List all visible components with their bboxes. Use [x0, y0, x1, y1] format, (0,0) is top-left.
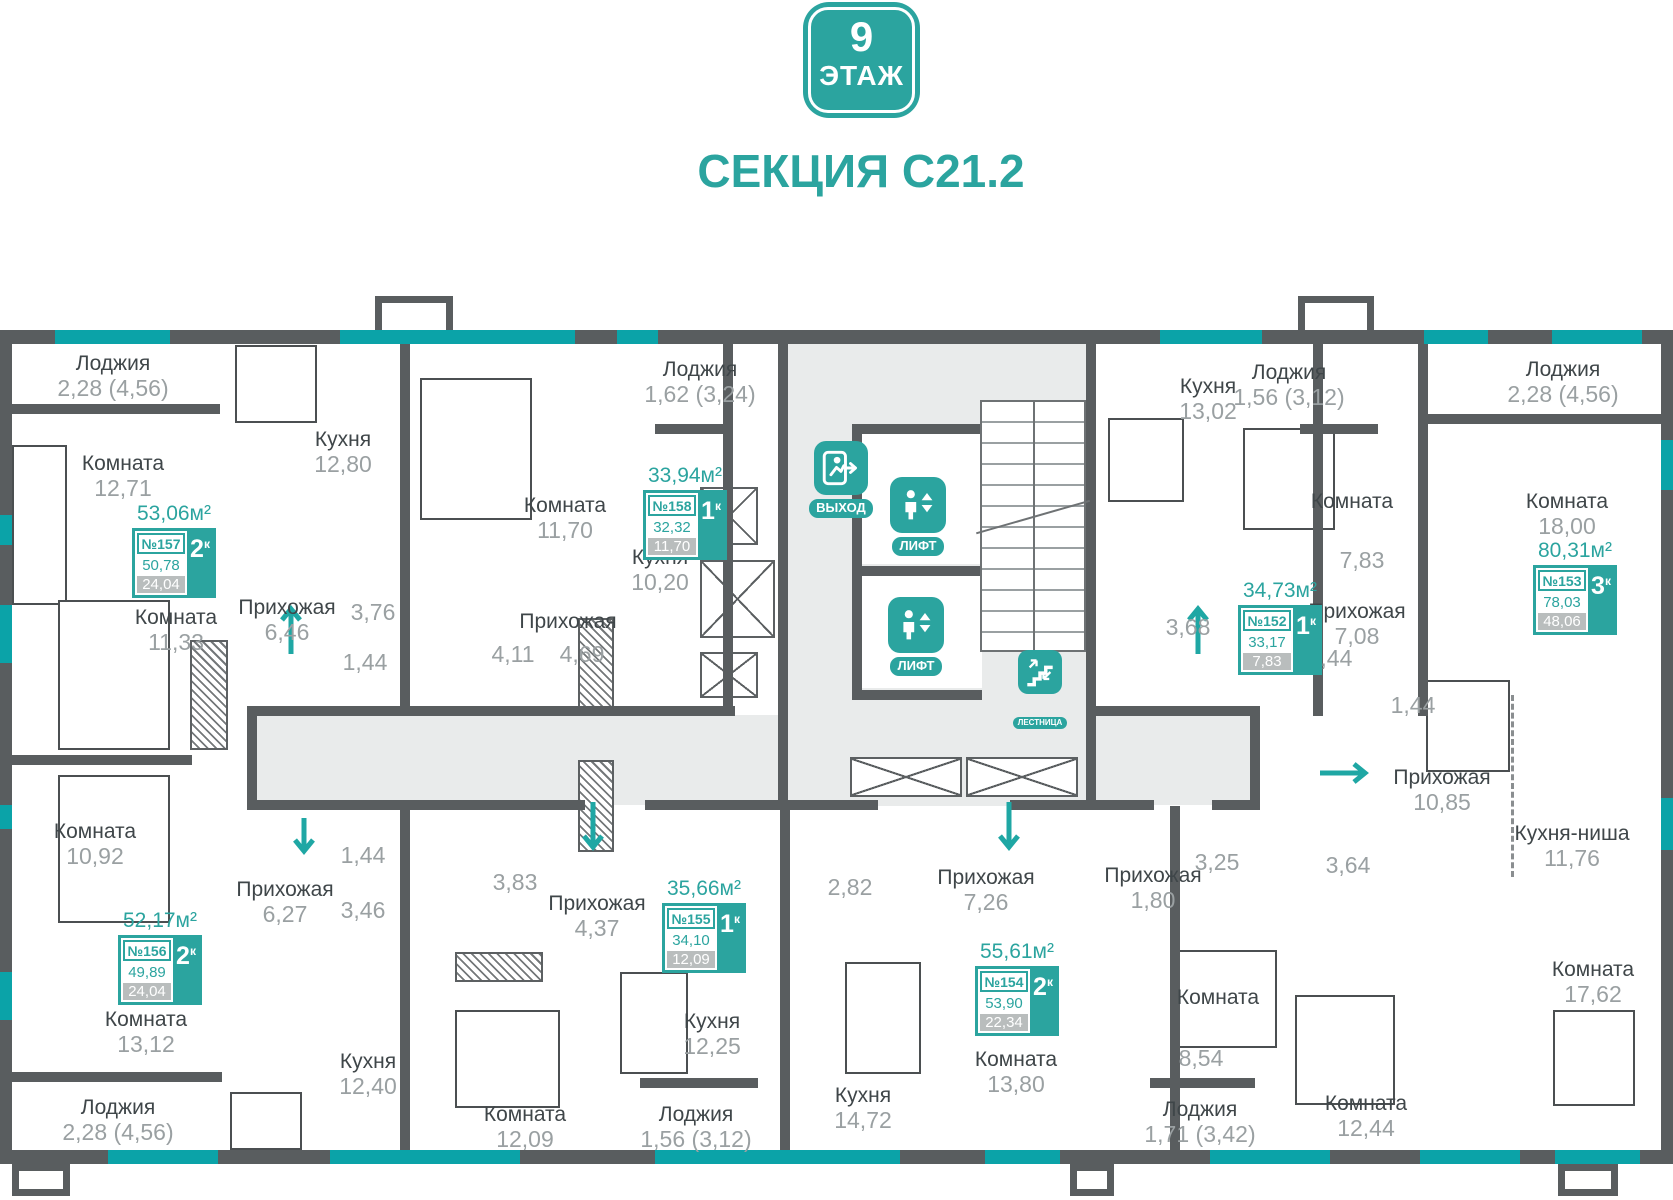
apartment-card[interactable]: 80,31м² №153 3к 78,03 48,06: [1533, 565, 1617, 635]
room-name: Лоджия: [640, 1103, 751, 1127]
stairs-icon-glyph: [1018, 650, 1062, 694]
room-label: Прихожая 7,08: [1308, 600, 1405, 649]
room-label: Комната 13,12: [105, 1008, 187, 1057]
room-label: 4,11: [491, 642, 534, 668]
apartment-secondary-area: 11,70: [648, 538, 696, 555]
room-area: 6,46: [238, 620, 335, 646]
room-area: 3,83: [493, 870, 538, 896]
room-label: Лоджия 1,56 (3,12): [640, 1103, 751, 1152]
room-label: Комната 12,71: [82, 452, 164, 501]
room-label: Прихожая 1,80: [1104, 864, 1201, 913]
room-area: 1,56 (3,12): [1233, 385, 1344, 411]
room-label: 3,46: [341, 898, 386, 924]
apartment-total-area: 52,17м²: [123, 909, 197, 933]
room-area: 1,80: [1104, 888, 1201, 914]
lift-icon-1-glyph: [890, 477, 946, 533]
room-area: 13,80: [975, 1072, 1057, 1098]
apartment-rooms-count: 1к: [1293, 608, 1319, 672]
room-name: Прихожая: [1308, 600, 1405, 624]
room-area: 4,37: [548, 916, 645, 942]
rooms-suffix: к: [1047, 976, 1053, 1033]
room-label: Лоджия 1,62 (3,24): [644, 358, 755, 407]
room-name: Лоджия: [62, 1096, 173, 1120]
room-label: Прихожая 4,37: [548, 892, 645, 941]
rooms-suffix: к: [1310, 615, 1316, 672]
rooms-suffix: к: [204, 538, 210, 595]
room-name: Лоджия: [1144, 1098, 1255, 1122]
apartment-secondary-area: 24,04: [123, 983, 171, 1000]
room-area: 13,12: [105, 1032, 187, 1058]
room-label: 8,54: [1179, 1046, 1224, 1072]
room-label: 2,82: [828, 875, 873, 901]
room-label: 1,44: [1391, 693, 1436, 719]
room-label: Комната 11,33: [135, 606, 217, 655]
room-name: Комната: [135, 606, 217, 630]
room-area: 1,56 (3,12): [640, 1127, 751, 1153]
room-area: 12,44: [1325, 1116, 1407, 1142]
room-name: Прихожая: [1393, 766, 1490, 790]
apartment-card[interactable]: 33,94м² №158 1к 32,32 11,70: [643, 490, 727, 560]
apartment-secondary-area: 48,06: [1538, 613, 1586, 630]
room-area: 2,82: [828, 875, 873, 901]
room-label: 3,76: [351, 600, 396, 626]
room-area: 3,64: [1326, 853, 1371, 879]
room-area: 10,92: [54, 844, 136, 870]
apartment-secondary-area: 24,04: [137, 576, 185, 593]
apartment-rooms-count: 2к: [173, 938, 199, 1002]
room-label: Кухня 12,40: [339, 1050, 397, 1099]
room-label: Кухня 12,80: [314, 428, 372, 477]
room-label: Прихожая 7,26: [937, 866, 1034, 915]
lift-label-2: ЛИФТ: [890, 657, 941, 676]
apartment-rooms-count: 2к: [187, 531, 213, 595]
room-name: Лоджия: [644, 358, 755, 382]
apartment-card[interactable]: 52,17м² №156 2к 49,89 24,04: [118, 935, 202, 1005]
apartment-total-area: 55,61м²: [980, 940, 1054, 964]
room-name: Комната: [1311, 490, 1393, 514]
apartment-number: №155: [667, 908, 715, 929]
room-area: 3,76: [351, 600, 396, 626]
room-area: 1,44: [341, 843, 386, 869]
room-label: 3,83: [493, 870, 538, 896]
exit-icon: ВЫХОД: [806, 441, 876, 518]
room-label: Прихожая 6,46: [238, 596, 335, 645]
apartment-living-area: 78,03: [1536, 592, 1588, 612]
room-name: Прихожая: [519, 610, 616, 634]
room-area: 11,33: [135, 630, 217, 656]
lift-icon-1: ЛИФТ: [888, 477, 948, 556]
apartment-total-area: 80,31м²: [1538, 539, 1612, 563]
apartment-number: №158: [648, 495, 696, 516]
room-label: Комната 10,92: [54, 820, 136, 869]
apartment-total-area: 34,73м²: [1243, 579, 1317, 603]
room-label: Лоджия 1,71 (3,42): [1144, 1098, 1255, 1147]
apartment-card-box: №157 2к 50,78 24,04: [132, 528, 216, 598]
apartment-total-area: 33,94м²: [648, 464, 722, 488]
apartment-rooms-count: 1к: [717, 906, 743, 970]
rooms-value: 3: [1591, 572, 1605, 632]
lift-label-1: ЛИФТ: [892, 537, 943, 556]
room-name: Кухня: [314, 428, 372, 452]
room-area: 7,83: [1340, 548, 1385, 574]
room-label: Лоджия 2,28 (4,56): [62, 1096, 173, 1145]
room-label: 7,83: [1340, 548, 1385, 574]
room-area: 10,85: [1393, 790, 1490, 816]
room-name: Лоджия: [1507, 358, 1618, 382]
room-area: 12,09: [484, 1127, 566, 1153]
room-label: 1,44: [341, 843, 386, 869]
direction-arrow-right-1: [1318, 760, 1370, 791]
room-label: 3,64: [1326, 853, 1371, 879]
apartment-number: №157: [137, 533, 185, 554]
room-label: Комната 17,62: [1552, 958, 1634, 1007]
apartment-living-area: 32,32: [646, 517, 698, 537]
room-name: Комната: [975, 1048, 1057, 1072]
apartment-secondary-area: 12,09: [667, 951, 715, 968]
room-name: Комната: [82, 452, 164, 476]
room-label: Комната 13,80: [975, 1048, 1057, 1097]
room-label: 4,69: [560, 642, 605, 668]
room-name: Кухня: [339, 1050, 397, 1074]
room-area: 2,28 (4,56): [57, 376, 168, 402]
stairs-label: ЛЕСТНИЦА: [1013, 717, 1068, 729]
room-label: Кухня 12,25: [683, 1010, 741, 1059]
room-area: 18,00: [1526, 514, 1608, 540]
apartment-secondary-area: 7,83: [1243, 653, 1291, 670]
room-label: Комната 11,70: [524, 494, 606, 543]
room-name: Комната: [1325, 1092, 1407, 1116]
apartment-number: №156: [123, 940, 171, 961]
room-name: Комната: [1552, 958, 1634, 982]
room-area: 7,26: [937, 890, 1034, 916]
apartment-card[interactable]: 55,61м² №154 2к 53,90 22,34: [975, 966, 1059, 1036]
apartment-number: №153: [1538, 570, 1586, 591]
apartment-card-box: №155 1к 34,10 12,09: [662, 903, 746, 973]
room-label: Лоджия 2,28 (4,56): [57, 352, 168, 401]
room-area: 11,70: [524, 518, 606, 544]
apartment-living-area: 53,90: [978, 993, 1030, 1013]
rooms-value: 1: [701, 497, 715, 557]
apartment-card-box: №158 1к 32,32 11,70: [643, 490, 727, 560]
room-name: Лоджия: [57, 352, 168, 376]
room-area: 1,44: [1391, 693, 1436, 719]
apartment-number: №152: [1243, 610, 1291, 631]
room-label: Кухня 14,72: [834, 1084, 892, 1133]
room-name: Прихожая: [548, 892, 645, 916]
room-area: 2,28 (4,56): [1507, 382, 1618, 408]
room-label: Прихожая 6,27: [236, 878, 333, 927]
room-label: Прихожая 10,85: [1393, 766, 1490, 815]
apartment-rooms-count: 3к: [1588, 568, 1614, 632]
room-area: 14,72: [834, 1108, 892, 1134]
lift-icon-2-glyph: [888, 597, 944, 653]
room-name: Комната: [1177, 986, 1259, 1010]
room-label: Комната: [1311, 490, 1393, 514]
rooms-suffix: к: [734, 913, 740, 970]
apartment-living-area: 49,89: [121, 962, 173, 982]
room-area: 13,02: [1179, 399, 1237, 425]
page: 9 ЭТАЖ СЕКЦИЯ С21.2 ВЫХОД: [0, 0, 1673, 1200]
room-name: Кухня: [834, 1084, 892, 1108]
room-label: 3,25: [1195, 850, 1240, 876]
room-area: 3,68: [1166, 615, 1211, 641]
room-name: Комната: [484, 1103, 566, 1127]
room-area: 17,62: [1552, 982, 1634, 1008]
apartment-living-area: 34,10: [665, 930, 717, 950]
apartment-card[interactable]: 35,66м² №155 1к 34,10 12,09: [662, 903, 746, 973]
direction-arrow-down-1: [291, 816, 317, 861]
rooms-value: 2: [176, 942, 190, 1002]
room-area: 11,76: [1514, 846, 1629, 872]
room-label: Комната 18,00: [1526, 490, 1608, 539]
room-name: Комната: [524, 494, 606, 518]
apartment-living-area: 33,17: [1241, 632, 1293, 652]
room-area: 2,28 (4,56): [62, 1120, 173, 1146]
rooms-suffix: к: [1605, 575, 1611, 632]
room-label: Комната: [1177, 986, 1259, 1010]
apartment-card-box: №154 2к 53,90 22,34: [975, 966, 1059, 1036]
room-area: 1,71 (3,42): [1144, 1122, 1255, 1148]
exit-label: ВЫХОД: [809, 499, 873, 518]
room-label: Комната 12,44: [1325, 1092, 1407, 1141]
room-area: 12,25: [683, 1034, 741, 1060]
room-label: Кухня 13,02: [1179, 375, 1237, 424]
apartment-card-box: №153 3к 78,03 48,06: [1533, 565, 1617, 635]
lift-icon-2: ЛИФТ: [886, 597, 946, 676]
room-area: 12,40: [339, 1074, 397, 1100]
room-label: Кухня-ниша 11,76: [1514, 822, 1629, 871]
room-area: 3,25: [1195, 850, 1240, 876]
rooms-value: 1: [1296, 612, 1310, 672]
apartment-card[interactable]: 34,73м² №152 1к 33,17 7,83: [1238, 605, 1322, 675]
room-label: Комната 12,09: [484, 1103, 566, 1152]
rooms-suffix: к: [190, 945, 196, 1002]
direction-arrow-down-3: [996, 800, 1022, 857]
stairs-icon: ЛЕСТНИЦА: [1000, 650, 1080, 730]
apartment-total-area: 35,66м²: [667, 877, 741, 901]
room-label: 1,44: [343, 650, 388, 676]
room-label: Лоджия 1,56 (3,12): [1233, 361, 1344, 410]
room-name: Кухня: [1179, 375, 1237, 399]
room-area: 4,69: [560, 642, 605, 668]
apartment-total-area: 53,06м²: [137, 502, 211, 526]
room-label: Прихожая: [519, 610, 616, 634]
room-name: Прихожая: [236, 878, 333, 902]
room-name: Прихожая: [238, 596, 335, 620]
exit-icon-glyph: [814, 441, 868, 495]
room-area: 1,44: [343, 650, 388, 676]
rooms-suffix: к: [715, 500, 721, 557]
room-area: 6,27: [236, 902, 333, 928]
room-area: 10,20: [631, 570, 689, 596]
apartment-rooms-count: 2к: [1030, 969, 1056, 1033]
floor-plan: ВЫХОД ЛИФТ: [0, 0, 1673, 1200]
room-area: 8,54: [1179, 1046, 1224, 1072]
room-name: Прихожая: [937, 866, 1034, 890]
rooms-value: 2: [1033, 973, 1047, 1033]
room-area: 12,71: [82, 476, 164, 502]
direction-arrow-down-2: [580, 800, 606, 857]
room-label: 3,68: [1166, 615, 1211, 641]
rooms-value: 1: [720, 910, 734, 970]
room-name: Комната: [1526, 490, 1608, 514]
apartment-living-area: 50,78: [135, 555, 187, 575]
room-area: 3,46: [341, 898, 386, 924]
apartment-number: №154: [980, 971, 1028, 992]
apartment-card-box: №152 1к 33,17 7,83: [1238, 605, 1322, 675]
apartment-rooms-count: 1к: [698, 493, 724, 557]
room-area: 1,62 (3,24): [644, 382, 755, 408]
room-name: Прихожая: [1104, 864, 1201, 888]
room-name: Лоджия: [1233, 361, 1344, 385]
apartment-card-box: №156 2к 49,89 24,04: [118, 935, 202, 1005]
room-area: 12,80: [314, 452, 372, 478]
room-area: 4,11: [491, 642, 534, 668]
apartment-card[interactable]: 53,06м² №157 2к 50,78 24,04: [132, 528, 216, 598]
room-name: Кухня: [683, 1010, 741, 1034]
room-name: Комната: [105, 1008, 187, 1032]
room-label: Лоджия 2,28 (4,56): [1507, 358, 1618, 407]
rooms-value: 2: [190, 535, 204, 595]
room-name: Комната: [54, 820, 136, 844]
apartment-secondary-area: 22,34: [980, 1014, 1028, 1031]
room-name: Кухня-ниша: [1514, 822, 1629, 846]
